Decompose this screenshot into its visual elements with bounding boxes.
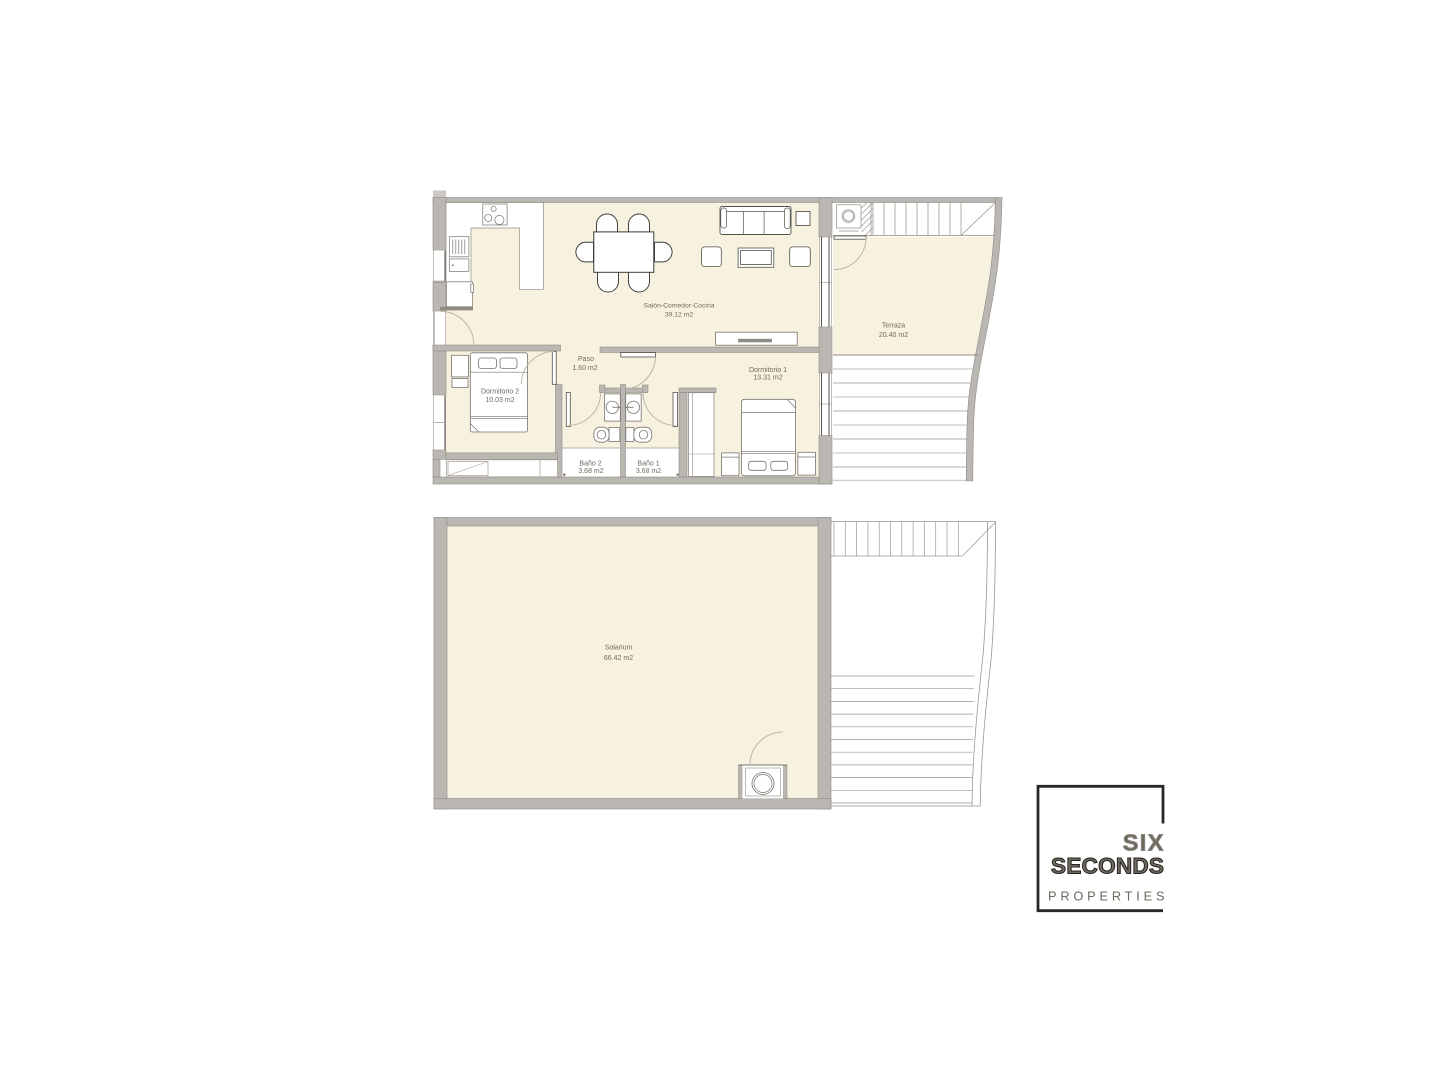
svg-text:1.60 m2: 1.60 m2: [572, 365, 597, 372]
svg-text:SIX: SIX: [1123, 830, 1165, 856]
svg-text:SECONDS: SECONDS: [1051, 854, 1164, 879]
svg-text:66.42 m2: 66.42 m2: [604, 655, 633, 662]
svg-text:Baño 2: Baño 2: [579, 461, 601, 468]
svg-text:10.03 m2: 10.03 m2: [485, 397, 514, 404]
svg-text:Dormitorio 2: Dormitorio 2: [481, 389, 519, 396]
svg-text:39.12 m2: 39.12 m2: [665, 312, 694, 319]
svg-text:Salón-Comedor-Cocina: Salón-Comedor-Cocina: [643, 303, 714, 310]
svg-text:3.68 m2: 3.68 m2: [578, 468, 603, 475]
svg-text:PROPERTIES: PROPERTIES: [1048, 888, 1168, 903]
svg-text:Paso: Paso: [578, 356, 594, 363]
svg-text:Solarium: Solarium: [605, 645, 633, 652]
svg-text:13.31 m2: 13.31 m2: [753, 375, 782, 382]
svg-text:20.40 m2: 20.40 m2: [879, 332, 908, 339]
svg-text:3.68 m2: 3.68 m2: [636, 468, 661, 475]
svg-text:Baño 1: Baño 1: [637, 461, 659, 468]
svg-text:Terraza: Terraza: [882, 323, 905, 330]
svg-text:Dormitorio 1: Dormitorio 1: [749, 367, 787, 374]
